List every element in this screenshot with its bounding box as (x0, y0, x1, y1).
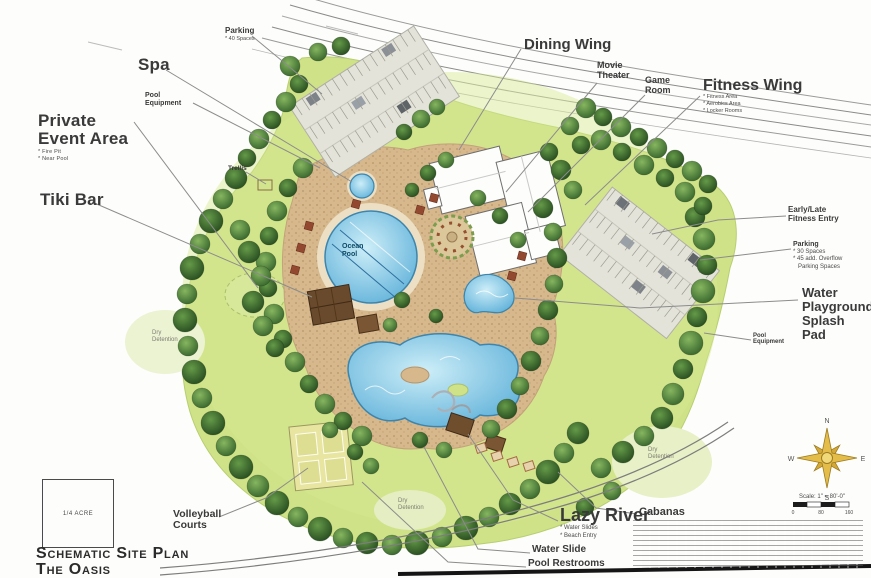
callout-water-playground: Water Playground/ Splash Pad (802, 286, 871, 342)
callout-pool-equipment-nw: Pool Equipment (145, 92, 181, 107)
dry-detention-label-east: Dry Detention (648, 447, 674, 461)
disclaimer-fine-print (633, 520, 863, 568)
callout-parking-nw: Parking* 40 Spaces (225, 27, 255, 43)
callout-fitness-entry: Early/Late Fitness Entry (788, 206, 839, 223)
callout-game-room: Game Room (645, 76, 671, 95)
scale-label: Scale: 1" = 80'-0" (799, 494, 845, 500)
callout-pool-equipment-e: Pool Equipment (753, 333, 784, 346)
scale-tick-2: 160 (845, 510, 854, 516)
scale-bar: Scale: 1" = 80'-0" 0 80 160 (792, 494, 854, 516)
compass-e: E (861, 456, 866, 463)
dry-detention-label-south: Dry Detention (398, 498, 424, 512)
callout-movie-theater: Movie Theater (597, 61, 630, 80)
callout-private-event-area: Private Event Area* Fire Pit* Near Pool (38, 112, 128, 162)
callout-dining-wing: Dining Wing (524, 37, 611, 53)
callout-trellis: Trellis (228, 165, 247, 172)
event-garden (431, 216, 473, 258)
site-plan-page: N E S W Scale: 1" = 80'-0" 0 80 160 Park… (0, 0, 871, 578)
plan-subtitle: The Oasis (36, 561, 111, 578)
callout-fitness-wing: Fitness Wing* Fitness Area* Aerobics Are… (703, 77, 802, 115)
scale-tick-0: 0 (792, 510, 795, 516)
acre-reference-box: 1/4 ACRE (42, 479, 114, 548)
dry-detention-label-west: Dry Detention (152, 330, 178, 344)
callout-water-slide: Water Slide (532, 545, 586, 556)
compass-w: W (788, 456, 795, 463)
callout-spa: Spa (138, 56, 170, 74)
plan-title: Schematic Site Plan (36, 545, 189, 562)
compass-rose: N E S W (788, 418, 866, 502)
callout-parking-e: Parking* 30 Spaces* 45 add. OverflowPark… (793, 241, 842, 271)
callout-tiki-bar: Tiki Bar (40, 191, 104, 209)
callout-volleyball: Volleyball Courts (173, 509, 221, 532)
pool-name-label: Ocean Pool (342, 243, 363, 258)
compass-n: N (824, 418, 829, 425)
volleyball-courts-area (289, 421, 353, 491)
acre-reference-label: 1/4 ACRE (63, 511, 93, 517)
scale-tick-1: 80 (818, 510, 824, 516)
callout-pool-restrooms: Pool Restrooms (528, 559, 605, 570)
lazy-river-lagoon (348, 334, 519, 427)
spa-pool (347, 171, 377, 201)
